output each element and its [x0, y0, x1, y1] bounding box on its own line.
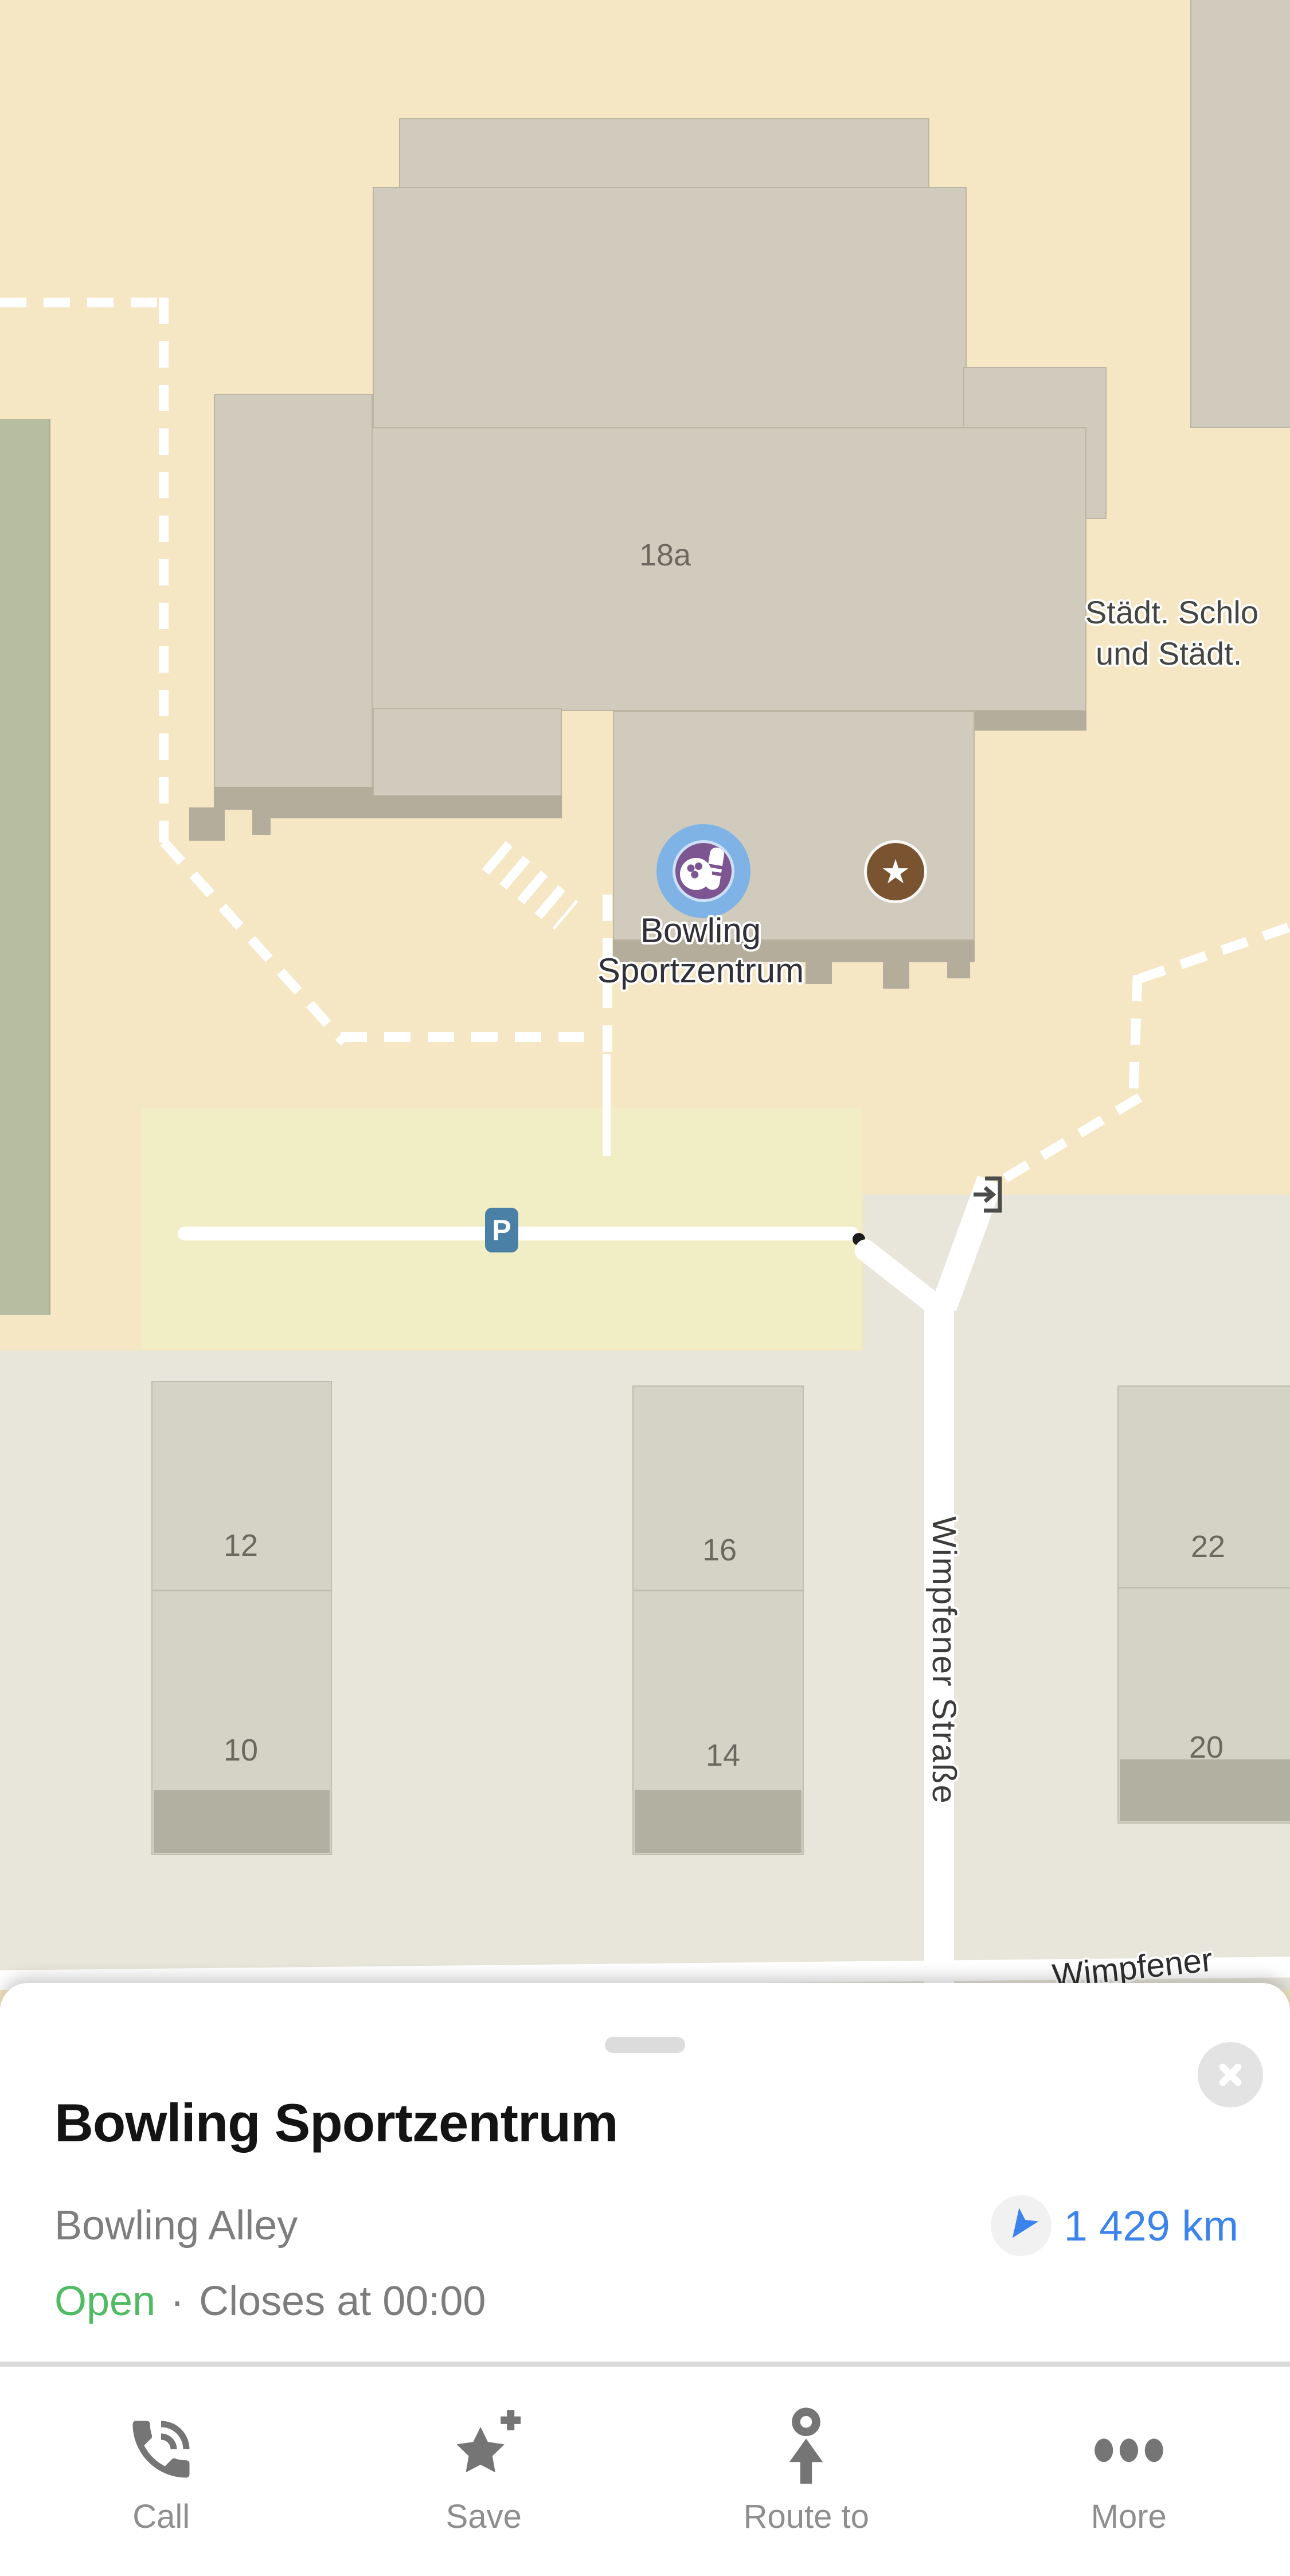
- house-number-16: 16: [702, 1532, 737, 1568]
- close-icon: [1214, 2058, 1247, 2091]
- poi-map-label: Bowling Sportzentrum: [529, 911, 873, 991]
- entrance-arrow-icon: [972, 1174, 1006, 1215]
- building-shadow: [263, 795, 562, 818]
- call-label: Call: [132, 2497, 190, 2536]
- divider: [0, 2362, 1290, 2367]
- building-18a: [373, 187, 967, 431]
- action-bar: Call Save Route to: [0, 2367, 1290, 2576]
- footpath-dashed: [996, 1093, 1143, 1186]
- building-18a-west-wing: [214, 394, 373, 809]
- house-number-18a: 18a: [639, 537, 691, 573]
- phone-icon: [123, 2390, 199, 2487]
- footpath-dashed: [159, 298, 169, 842]
- save-label: Save: [446, 2497, 522, 2536]
- building-top-right: [1190, 0, 1290, 428]
- area-label-line1: Städt. Schlo: [1085, 592, 1258, 633]
- status-hours: Closes at 00:00: [199, 2278, 486, 2325]
- poi-map-label-line1: Bowling: [529, 911, 873, 951]
- status-separator: ·: [170, 2278, 184, 2325]
- star-icon[interactable]: ★: [867, 843, 924, 900]
- area-label-line2: und Städt.: [1085, 633, 1258, 674]
- more-button[interactable]: More: [968, 2367, 1290, 2576]
- service-road: [603, 1054, 611, 1156]
- drag-handle[interactable]: [605, 2037, 685, 2053]
- save-button[interactable]: Save: [323, 2367, 646, 2576]
- house-number-10: 10: [224, 1732, 258, 1768]
- house-number-14: 14: [706, 1738, 740, 1773]
- house-number-22: 22: [1191, 1529, 1225, 1564]
- parking-aisle: [178, 1227, 859, 1240]
- star-plus-icon: [444, 2390, 524, 2487]
- building-shadow: [947, 961, 970, 978]
- route-marker-icon: [766, 2390, 846, 2487]
- area-label: Städt. Schlo und Städt.: [1085, 592, 1258, 674]
- building-block-12-10: [151, 1381, 332, 1855]
- distance-indicator: 1 429 km: [991, 2195, 1238, 2256]
- distance-value: 1 429 km: [1064, 2202, 1238, 2250]
- route-to-label: Route to: [744, 2497, 869, 2536]
- more-label: More: [1091, 2497, 1167, 2536]
- status-open: Open: [54, 2278, 155, 2325]
- footpath-dashed: [341, 1032, 584, 1042]
- building-18a: [399, 118, 929, 190]
- building-18a: [337, 427, 1086, 711]
- place-category: Bowling Alley: [54, 2202, 298, 2249]
- map-canvas[interactable]: P 18a 12 10 16: [0, 0, 1290, 1990]
- house-number-20: 20: [1189, 1730, 1223, 1765]
- house-number-12: 12: [224, 1528, 258, 1563]
- green-area: [0, 419, 50, 1315]
- building-block-16-14: [632, 1385, 804, 1855]
- building-shadow: [189, 807, 225, 841]
- footpath-dashed: [1138, 923, 1290, 983]
- bowling-ball-glyph: [680, 858, 712, 890]
- opening-status: Open · Closes at 00:00: [54, 2270, 486, 2333]
- ellipsis-icon: [1089, 2390, 1169, 2487]
- poi-map-label-line2: Sportzentrum: [529, 951, 873, 991]
- app-screen: P 18a 12 10 16: [0, 0, 1290, 2576]
- footpath-dashed: [0, 298, 161, 307]
- street-label-wimpfener-strasse: Wimpfener Straße: [917, 1471, 963, 1849]
- call-button[interactable]: Call: [0, 2367, 323, 2576]
- bowling-icon-inner: [675, 843, 732, 899]
- building-shadow: [883, 961, 909, 989]
- parking-badge[interactable]: P: [485, 1208, 518, 1252]
- close-button[interactable]: [1198, 2042, 1263, 2107]
- footpath-dashed: [161, 839, 348, 1046]
- route-to-button[interactable]: Route to: [645, 2367, 968, 2576]
- footpath-dashed: [1128, 975, 1142, 1095]
- place-details-sheet: Bowling Sportzentrum Bowling Alley 1 429…: [0, 1983, 1290, 2576]
- building-bowling-annex: [613, 711, 975, 940]
- navigation-arrow-icon: [991, 2195, 1051, 2256]
- place-title: Bowling Sportzentrum: [54, 2092, 618, 2154]
- bowling-icon[interactable]: [656, 824, 750, 918]
